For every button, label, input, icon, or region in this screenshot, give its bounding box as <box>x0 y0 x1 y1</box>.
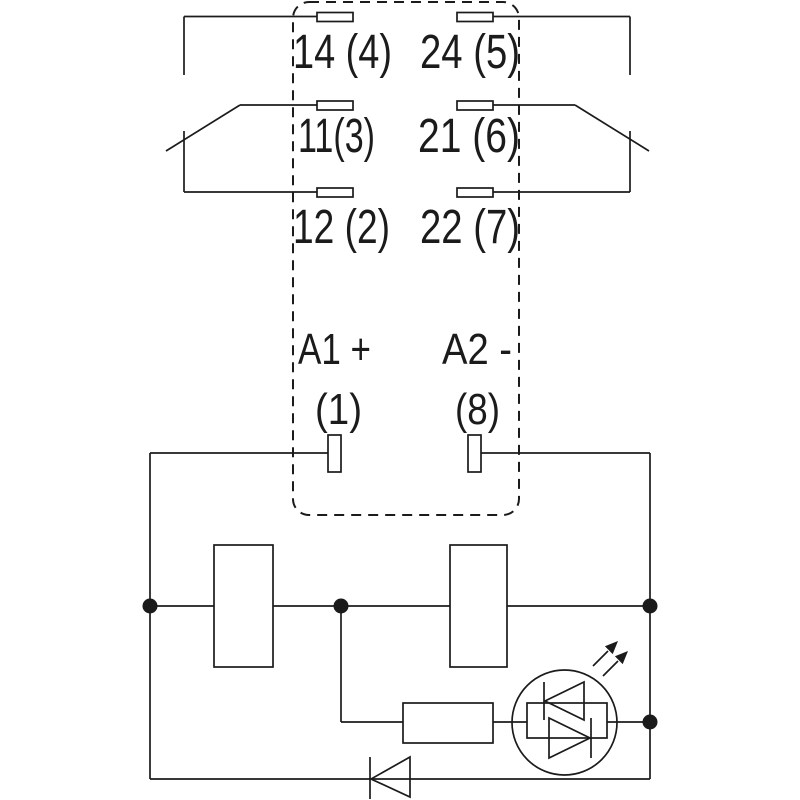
movable-contact-right <box>575 105 649 151</box>
junction-dot-middle <box>334 599 349 614</box>
terminal-pad-22 <box>457 188 493 197</box>
terminal-pad-14 <box>317 13 353 22</box>
junction-dot-right-led <box>643 715 658 730</box>
relay-wiring-diagram: 14 (4) 24 (5) 11(3) 21 (6) 12 (2) 22 (7)… <box>0 0 800 800</box>
coil-box-left <box>214 545 273 667</box>
label-14-4: 14 (4) <box>293 26 392 79</box>
label-a1-plus: A1 + <box>298 325 371 374</box>
terminal-pad-24 <box>457 13 493 22</box>
junction-dot-left <box>143 599 158 614</box>
terminal-pad-a2 <box>468 435 481 472</box>
label-21-6: 21 (6) <box>418 110 520 163</box>
label-22-7: 22 (7) <box>420 201 520 254</box>
label-a2-minus: A2 - <box>442 325 512 374</box>
terminal-pad-12 <box>317 188 353 197</box>
label-pin-8: (8) <box>455 385 500 434</box>
diode-triangle <box>371 757 410 797</box>
freewheeling-diode <box>370 757 410 799</box>
led-diode-up <box>545 682 584 720</box>
label-pin-1: (1) <box>315 385 362 434</box>
schematic-svg: 14 (4) 24 (5) 11(3) 21 (6) 12 (2) 22 (7)… <box>0 0 800 800</box>
series-resistor <box>403 703 493 743</box>
movable-contact-left <box>166 105 240 151</box>
label-11-3: 11(3) <box>298 110 375 163</box>
arrow-shaft-1 <box>593 651 608 666</box>
coil-box-right <box>450 545 507 667</box>
junction-dot-right-top <box>643 599 658 614</box>
led-emission-arrows-icon <box>593 641 628 676</box>
led-body-rect <box>527 703 607 738</box>
terminal-pad-11 <box>317 101 353 110</box>
terminal-pad-a1 <box>328 435 341 472</box>
terminal-labels: 14 (4) 24 (5) 11(3) 21 (6) 12 (2) 22 (7)… <box>293 26 520 434</box>
bidirectional-led-indicator <box>512 641 628 775</box>
label-12-2: 12 (2) <box>293 201 390 254</box>
coil-terminals <box>328 435 481 472</box>
label-24-5: 24 (5) <box>420 26 520 79</box>
supply-circuit <box>143 453 658 799</box>
terminal-pad-21 <box>457 101 493 110</box>
arrow-shaft-2 <box>603 661 618 676</box>
